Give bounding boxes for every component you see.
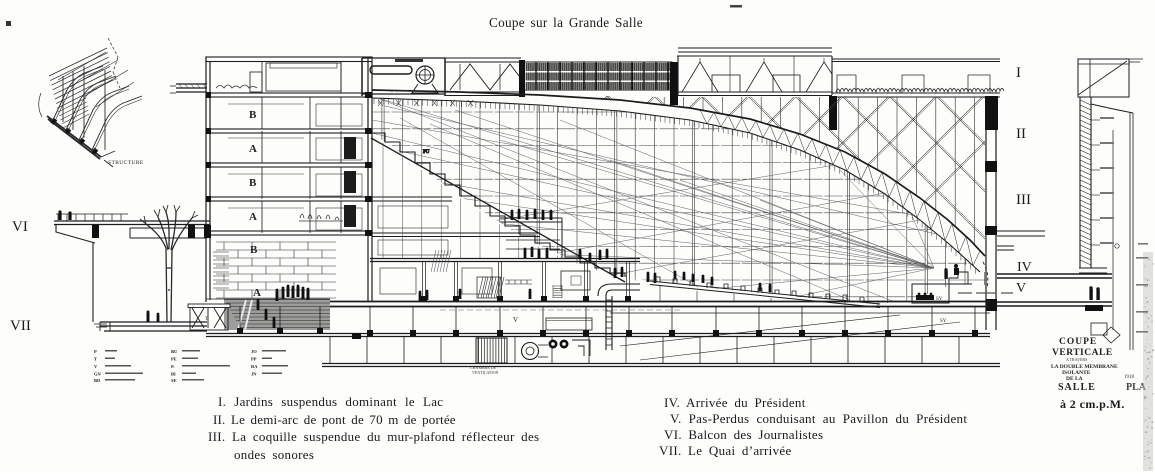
svg-text:BD: BD	[94, 378, 101, 383]
svg-text:I: I	[1016, 65, 1021, 81]
svg-text:III: III	[1016, 192, 1031, 208]
svg-text:VII. Le Quai d’arrivée: VII. Le Quai d’arrivée	[659, 443, 792, 458]
svg-text:V. Pas-Perdus conduisant au Pa: V. Pas-Perdus conduisant au Pavillon du …	[670, 411, 967, 426]
svg-text:T: T	[205, 317, 208, 322]
svg-text:A TRAVERS: A TRAVERS	[1066, 357, 1087, 362]
svg-text:à 2 cm.p.M.: à 2 cm.p.M.	[1060, 397, 1125, 411]
svg-text:IV: IV	[1017, 260, 1032, 275]
svg-text:T: T	[94, 357, 97, 362]
svg-text:VII: VII	[10, 318, 31, 334]
svg-text:A: A	[249, 143, 257, 155]
svg-text:SALLE: SALLE	[1058, 382, 1096, 393]
svg-text:B: B	[249, 177, 257, 189]
svg-text:IV. Arrivée du Président: IV. Arrivée du Président	[664, 395, 806, 410]
svg-text:B: B	[250, 244, 258, 256]
svg-text:VI. Balcon des Journalistes: VI. Balcon des Journalistes	[664, 427, 823, 442]
svg-text:ondes sonores: ondes sonores	[234, 447, 314, 462]
svg-text:SE: SE	[171, 378, 177, 383]
svg-text:STRUCTURE: STRUCTURE	[108, 160, 144, 166]
svg-text:JN: JN	[251, 372, 257, 377]
svg-text:PU: PU	[423, 150, 430, 155]
svg-text:II. Le demi-arc de pont de 70: II. Le demi-arc de pont de 70 m de porté…	[213, 412, 456, 427]
svg-text:V: V	[1016, 281, 1026, 296]
svg-text:BI: BI	[171, 372, 176, 377]
svg-text:COUPE: COUPE	[1059, 337, 1097, 347]
svg-text:Coupe sur la Grande Salle: Coupe sur la Grande Salle	[489, 15, 643, 30]
svg-text:PP: PP	[251, 357, 257, 362]
svg-text:SY: SY	[940, 319, 947, 324]
svg-text:A: A	[253, 287, 261, 299]
svg-text:B: B	[249, 109, 257, 121]
svg-text:PE: PE	[171, 357, 177, 362]
svg-text:1918: 1918	[1124, 375, 1135, 380]
svg-text:A: A	[249, 211, 257, 223]
svg-text:VI: VI	[12, 219, 28, 235]
svg-text:P.: P.	[171, 364, 174, 369]
svg-text:JO: JO	[251, 349, 257, 354]
svg-text:RA: RA	[251, 364, 258, 369]
svg-text:I. Jardins suspendus dominant: I. Jardins suspendus dominant le Lac	[218, 394, 443, 409]
svg-text:III. La coquille suspendue du: III. La coquille suspendue du mur-plafon…	[208, 429, 539, 444]
svg-text:VENTILATION: VENTILATION	[472, 370, 499, 375]
svg-text:BU: BU	[171, 349, 178, 354]
svg-text:GN: GN	[94, 372, 102, 377]
svg-text:P: P	[94, 349, 97, 354]
svg-text:II: II	[1016, 126, 1026, 142]
svg-text:V: V	[513, 316, 518, 324]
